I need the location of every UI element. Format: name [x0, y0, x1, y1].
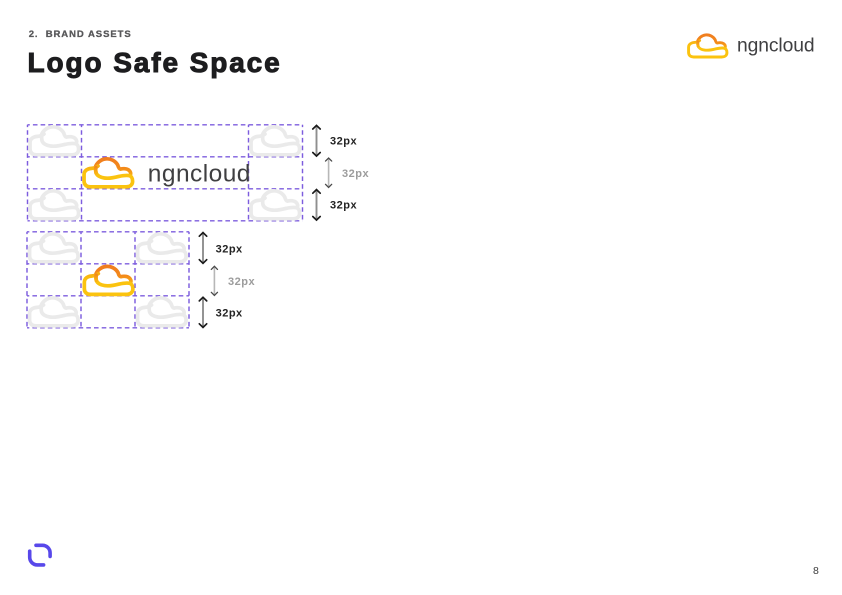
svg-text:32px: 32px: [228, 276, 255, 288]
svg-text:32px: 32px: [216, 244, 243, 256]
svg-text:32px: 32px: [342, 168, 369, 180]
svg-text:2. BRAND ASSETS: 2. BRAND ASSETS: [29, 29, 132, 40]
svg-text:32px: 32px: [216, 307, 243, 319]
svg-text:Logo Safe Space: Logo Safe Space: [28, 47, 282, 78]
svg-text:8: 8: [813, 565, 819, 577]
svg-text:32px: 32px: [330, 136, 357, 148]
svg-text:ngncloud: ngncloud: [148, 161, 251, 188]
svg-text:32px: 32px: [330, 199, 357, 211]
svg-text:ngncloud: ngncloud: [737, 36, 814, 57]
